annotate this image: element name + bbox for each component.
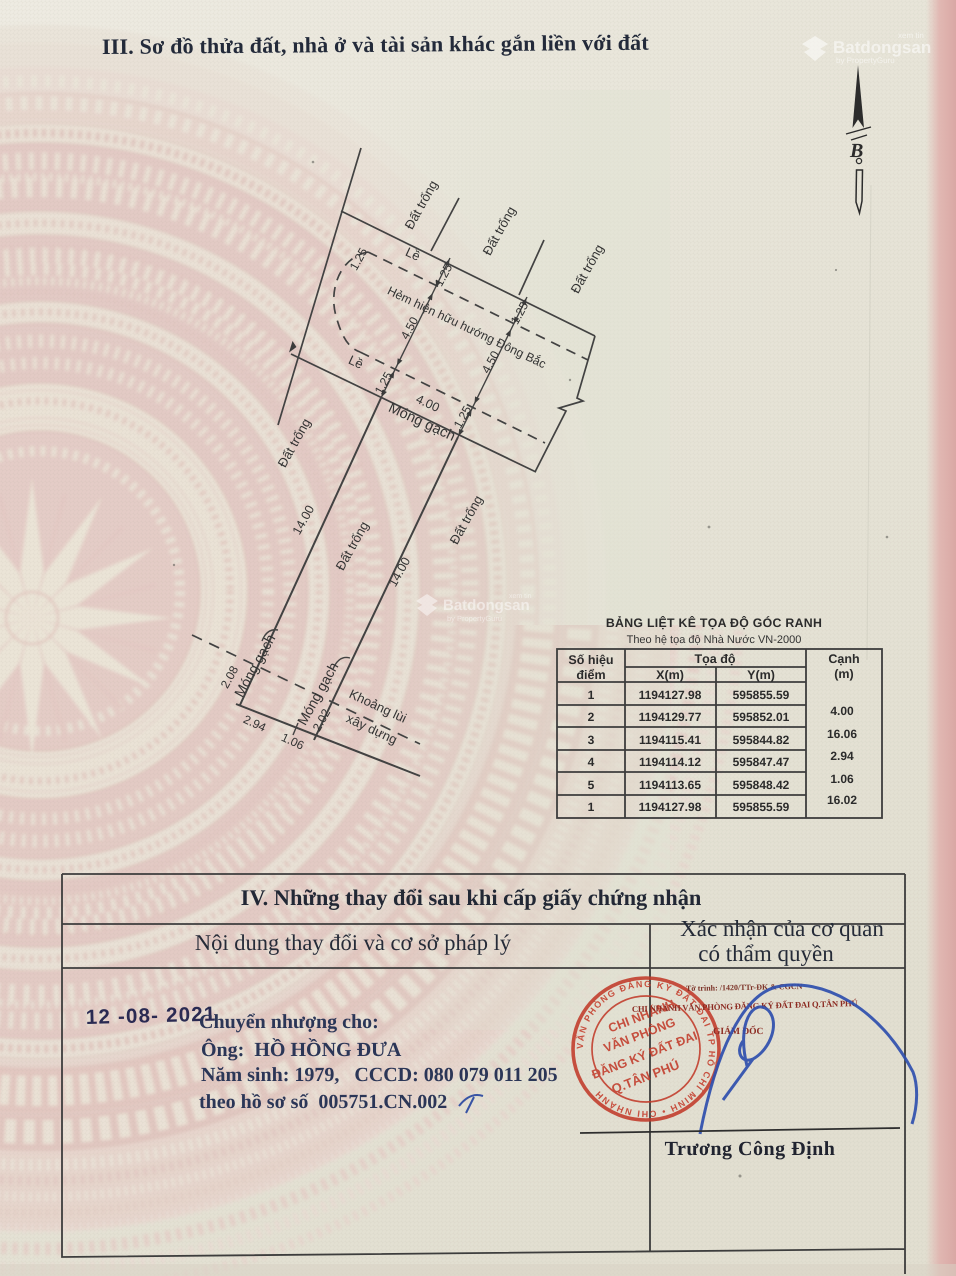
svg-text:595848.42: 595848.42 [733, 778, 790, 792]
svg-text:Y(m): Y(m) [747, 668, 775, 682]
svg-text:Batdongsan: Batdongsan [833, 38, 931, 57]
svg-text:16.02: 16.02 [827, 793, 857, 807]
svg-text:595852.01: 595852.01 [733, 710, 790, 724]
svg-text:BẢNG LIỆT KÊ TỌA ĐỘ GÓC RANH: BẢNG LIỆT KÊ TỌA ĐỘ GÓC RANH [606, 615, 822, 630]
svg-text:12 -08- 2021: 12 -08- 2021 [86, 1003, 217, 1029]
svg-text:Số hiệu: Số hiệu [568, 653, 613, 667]
svg-text:1194115.41: 1194115.41 [639, 733, 701, 747]
svg-text:595855.59: 595855.59 [733, 800, 790, 814]
svg-text:xem tin: xem tin [898, 31, 924, 40]
svg-text:Năm sinh: 1979, CCCD: 080 07: Năm sinh: 1979, CCCD: 080 079 011 205 [201, 1064, 558, 1086]
svg-text:xem tin: xem tin [509, 592, 532, 600]
svg-text:Theo hệ tọa độ Nhà Nước VN-200: Theo hệ tọa độ Nhà Nước VN-2000 [627, 634, 802, 646]
svg-text:595844.82: 595844.82 [733, 733, 790, 747]
svg-text:1: 1 [588, 688, 595, 702]
svg-text:theo hồ sơ số 005751.CN.002: theo hồ sơ số 005751.CN.002 [199, 1091, 447, 1113]
svg-text:Cạnh: Cạnh [828, 652, 859, 666]
svg-text:IV. Những thay đổi sau khi cấp: IV. Những thay đổi sau khi cấp giấy chứn… [241, 885, 702, 910]
svg-text:1194129.77: 1194129.77 [639, 710, 702, 724]
svg-text:1.06: 1.06 [830, 772, 854, 786]
svg-text:có thẩm quyền: có thẩm quyền [698, 941, 834, 966]
svg-text:16.06: 16.06 [827, 727, 857, 741]
svg-text:2: 2 [588, 710, 595, 724]
svg-text:1: 1 [588, 800, 595, 814]
svg-text:595855.59: 595855.59 [733, 688, 790, 702]
svg-text:5: 5 [588, 778, 595, 792]
svg-text:(m): (m) [834, 667, 853, 681]
svg-text:by PropertyGuru: by PropertyGuru [447, 614, 502, 623]
svg-text:Nội dung thay đổi và cơ sở phá: Nội dung thay đổi và cơ sở pháp lý [195, 930, 512, 955]
svg-text:1194113.65: 1194113.65 [639, 778, 701, 792]
svg-text:Trương Công Định: Trương Công Định [665, 1138, 836, 1160]
svg-text:3: 3 [588, 733, 595, 747]
svg-text:Ông: HỒ HỒNG ĐƯA: Ông: HỒ HỒNG ĐƯA [201, 1038, 402, 1061]
svg-text:by PropertyGuru: by PropertyGuru [836, 56, 895, 65]
svg-text:X(m): X(m) [656, 668, 684, 682]
svg-text:1194127.98: 1194127.98 [639, 688, 702, 702]
svg-text:1194127.98: 1194127.98 [639, 800, 702, 814]
svg-text:Xác nhận của cơ quan: Xác nhận của cơ quan [680, 916, 884, 941]
svg-text:III. Sơ đồ thửa đất, nhà ở và: III. Sơ đồ thửa đất, nhà ở và tài sản kh… [102, 30, 650, 59]
svg-text:Tọa độ: Tọa độ [695, 652, 736, 666]
svg-text:GIÁM ĐỐC: GIÁM ĐỐC [713, 1025, 764, 1037]
svg-text:4.00: 4.00 [830, 704, 854, 718]
svg-text:điểm: điểm [576, 668, 605, 682]
svg-text:Chuyển nhượng cho:: Chuyển nhượng cho: [199, 1011, 379, 1033]
svg-text:2.94: 2.94 [830, 749, 854, 763]
svg-text:1194114.12: 1194114.12 [639, 755, 701, 769]
svg-text:4: 4 [588, 755, 595, 769]
svg-text:595847.47: 595847.47 [733, 755, 790, 769]
